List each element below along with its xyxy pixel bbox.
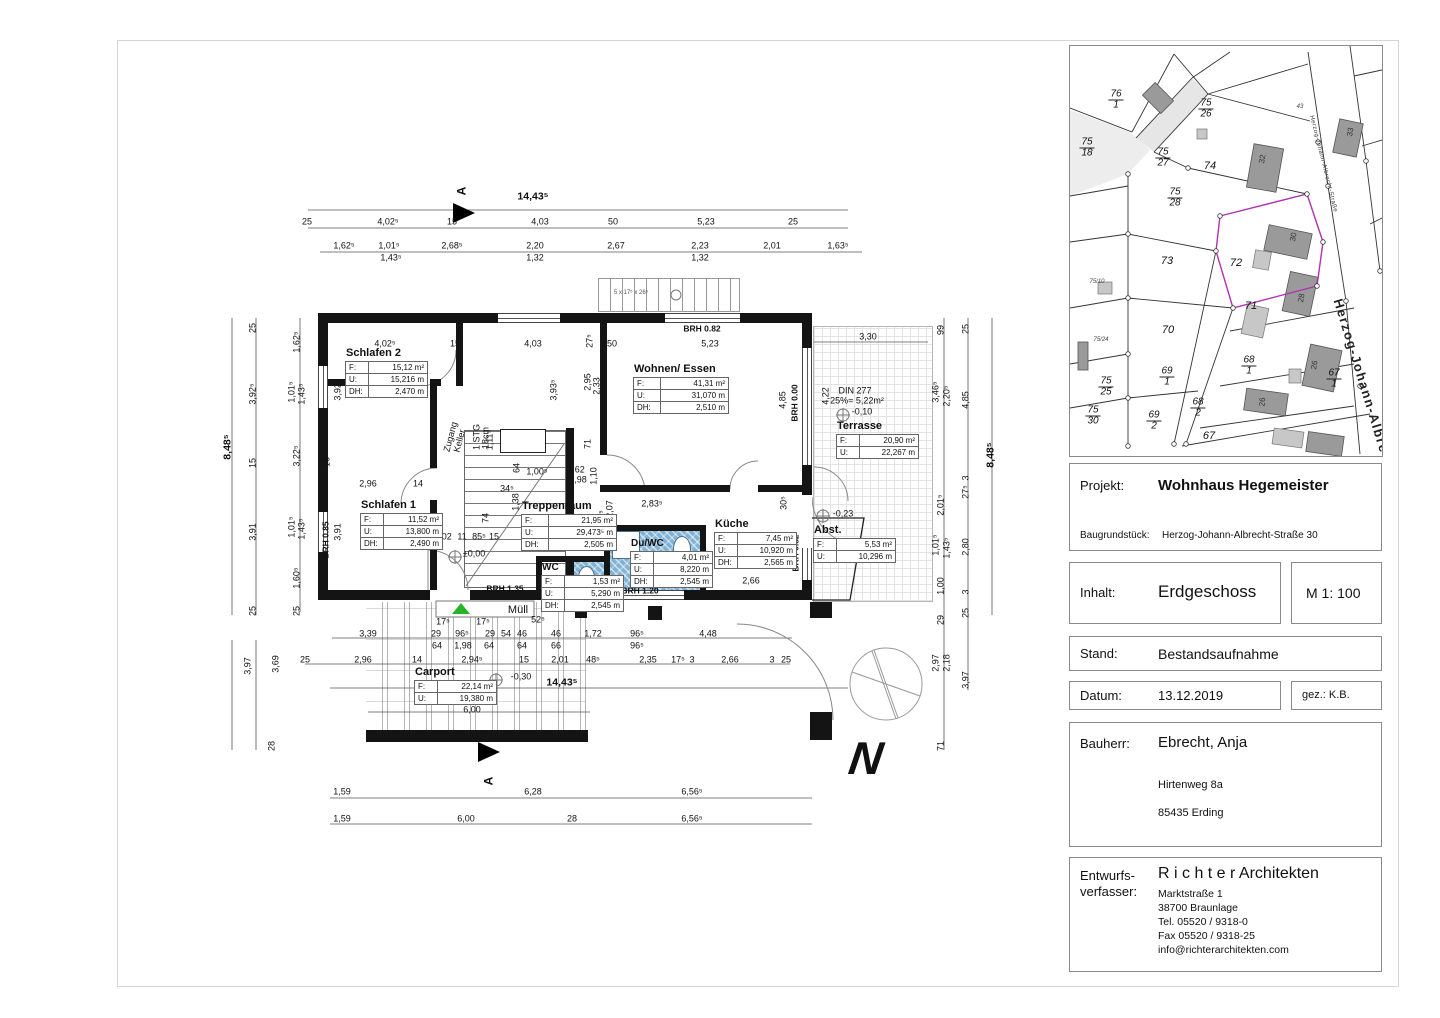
window-top-hall bbox=[498, 313, 560, 323]
room-name: Abst. bbox=[814, 524, 896, 536]
project-label: Projekt: bbox=[1080, 478, 1124, 493]
site-plan: 7617526751875277528681691752575306926826… bbox=[1069, 45, 1383, 457]
room-info-table: F:22,14 m² U:19,380 m bbox=[414, 680, 497, 705]
door-terrace-gap bbox=[802, 495, 812, 548]
room-info-table: F:11,52 m² U:13,800 m DH:2,490 m bbox=[360, 513, 443, 550]
content-label: Inhalt: bbox=[1080, 585, 1115, 600]
firm-address-2: 38700 Braunlage bbox=[1158, 902, 1238, 914]
wall-hall-wohnen bbox=[600, 313, 607, 455]
entrance-marker-triangle bbox=[452, 603, 470, 614]
plot-value: Herzog-Johann-Albrecht-Straße 30 bbox=[1162, 530, 1318, 541]
room-info-table: F:15,12 m² U:15,216 m DH:2,470 m bbox=[345, 361, 428, 398]
wall-wohnen-kueche-a bbox=[600, 485, 730, 492]
titleblock-client-box: Bauherr: Ebrecht, Anja Hirtenweg 8a 8543… bbox=[1069, 722, 1382, 847]
room-carport: Carport F:22,14 m² U:19,380 m bbox=[414, 666, 497, 705]
window-kueche-right bbox=[802, 548, 812, 580]
room-kueche: Küche F:7,45 m² U:10,920 m DH:2,565 m bbox=[714, 518, 797, 569]
room-name: Wohnen/ Essen bbox=[634, 363, 729, 375]
titleblock-project-box: Projekt: Wohnhaus Hegemeister Baugrundst… bbox=[1069, 463, 1382, 551]
drawing-sheet: N 14,43⁵254,02⁵154,03505,23251,62⁵1,01⁵1… bbox=[0, 0, 1440, 1018]
room-duwc: Du/WC F:4,01 m² U:8,220 m DH:2,545 m bbox=[630, 538, 713, 588]
room-schlafen1: Schlafen 1 F:11,52 m² U:13,800 m DH:2,49… bbox=[360, 499, 443, 550]
titleblock-architect-box: Entwurfs- verfasser: R i c h t e r Archi… bbox=[1069, 857, 1382, 972]
scale-value: M 1: 100 bbox=[1306, 585, 1360, 601]
room-terrasse: Terrasse F:20,90 m² U:22,267 m bbox=[836, 420, 919, 459]
status-value: Bestandsaufnahme bbox=[1158, 646, 1279, 662]
client-label: Bauherr: bbox=[1080, 736, 1130, 751]
wall-stub-abst bbox=[810, 602, 832, 618]
firm-fax: Fax 05520 / 9318-25 bbox=[1158, 930, 1255, 942]
titleblock-scale-box: M 1: 100 bbox=[1291, 562, 1382, 624]
content-value: Erdgeschoss bbox=[1158, 582, 1256, 602]
window-duwc-bottom bbox=[622, 590, 684, 600]
room-info-table: F:4,01 m² U:8,220 m DH:2,545 m bbox=[630, 551, 713, 588]
window-schlafen1 bbox=[318, 512, 328, 552]
room-name: Schlafen 1 bbox=[361, 499, 443, 511]
firm-address-1: Marktstraße 1 bbox=[1158, 888, 1223, 900]
plot-label: Baugrundstück: bbox=[1080, 530, 1150, 541]
client-address1: Hirtenweg 8a bbox=[1158, 779, 1223, 791]
date-value: 13.12.2019 bbox=[1158, 688, 1223, 703]
project-value: Wohnhaus Hegemeister bbox=[1158, 477, 1329, 494]
room-schlafen2: Schlafen 2 F:15,12 m² U:15,216 m DH:2,47… bbox=[345, 347, 428, 398]
room-name: Schlafen 2 bbox=[346, 347, 428, 359]
status-label: Stand: bbox=[1080, 646, 1118, 661]
architect-label-2: verfasser: bbox=[1080, 884, 1137, 899]
room-name: Küche bbox=[715, 518, 797, 530]
room-info-table: F:41,31 m² U:31,070 m DH:2,510 m bbox=[633, 377, 729, 414]
wall-schlafen1-hall-a bbox=[430, 386, 437, 468]
window-schlafen2 bbox=[318, 366, 328, 408]
room-name: Treppenraum bbox=[522, 500, 617, 512]
client-value: Ebrecht, Anja bbox=[1158, 734, 1247, 751]
section-marker-top-icon bbox=[453, 203, 475, 223]
titleblock-drawn-by-box: gez.: K.B. bbox=[1291, 681, 1382, 710]
exterior-stairs bbox=[598, 278, 740, 312]
room-name: WC bbox=[542, 562, 624, 573]
firm-name: R i c h t e r Architekten bbox=[1158, 865, 1319, 883]
wall-wohnen-kueche-b bbox=[758, 485, 812, 492]
wall-stub bbox=[430, 379, 441, 386]
site-plan-linework bbox=[1070, 46, 1382, 456]
firm-phone: Tel. 05520 / 9318-0 bbox=[1158, 916, 1248, 928]
door-entrance-gap bbox=[430, 590, 470, 600]
date-label: Datum: bbox=[1080, 688, 1122, 703]
chimney-box bbox=[500, 429, 546, 453]
room-abst: Abst. F:5,53 m² U:10,296 m bbox=[813, 524, 896, 563]
room-info-table: F:1,53 m² U:5,290 m DH:2,545 m bbox=[541, 575, 624, 612]
wall-carport-bottom bbox=[366, 730, 588, 742]
room-info-table: F:21,95 m² U:29,473⁵ m DH:2,505 m bbox=[521, 514, 617, 551]
titleblock-status-box: Stand: Bestandsaufnahme bbox=[1069, 636, 1382, 671]
window-wohnen-right bbox=[802, 348, 812, 465]
titleblock-content-box: Inhalt: Erdgeschoss bbox=[1069, 562, 1281, 624]
architect-label-1: Entwurfs- bbox=[1080, 868, 1135, 883]
wall-schlafen2-hall bbox=[456, 313, 463, 386]
room-treppenraum: Treppenraum F:21,95 m² U:29,473⁵ m DH:2,… bbox=[521, 500, 617, 551]
client-address2: 85435 Erding bbox=[1158, 807, 1223, 819]
wall-stub-gate bbox=[810, 712, 832, 740]
window-top-wohnen bbox=[665, 313, 740, 323]
wall-stub-entry bbox=[648, 606, 662, 620]
room-name: Carport bbox=[415, 666, 497, 678]
room-info-table: F:20,90 m² U:22,267 m bbox=[836, 434, 919, 459]
room-name: Terrasse bbox=[837, 420, 919, 432]
wall-duwc-top bbox=[604, 525, 702, 531]
firm-email: info@richterarchitekten.com bbox=[1158, 944, 1289, 956]
wall-exterior-left bbox=[318, 313, 328, 600]
room-info-table: F:5,53 m² U:10,296 m bbox=[813, 538, 896, 563]
section-marker-bottom-icon bbox=[478, 742, 500, 762]
drawn-by-value: gez.: K.B. bbox=[1302, 689, 1350, 701]
room-wc: WC F:1,53 m² U:5,290 m DH:2,545 m bbox=[541, 562, 624, 612]
room-name: Du/WC bbox=[631, 538, 713, 549]
room-info-table: F:7,45 m² U:10,920 m DH:2,565 m bbox=[714, 532, 797, 569]
titleblock-date-box: Datum: 13.12.2019 bbox=[1069, 681, 1281, 710]
room-wohnen: Wohnen/ Essen F:41,31 m² U:31,070 m DH:2… bbox=[633, 363, 729, 414]
